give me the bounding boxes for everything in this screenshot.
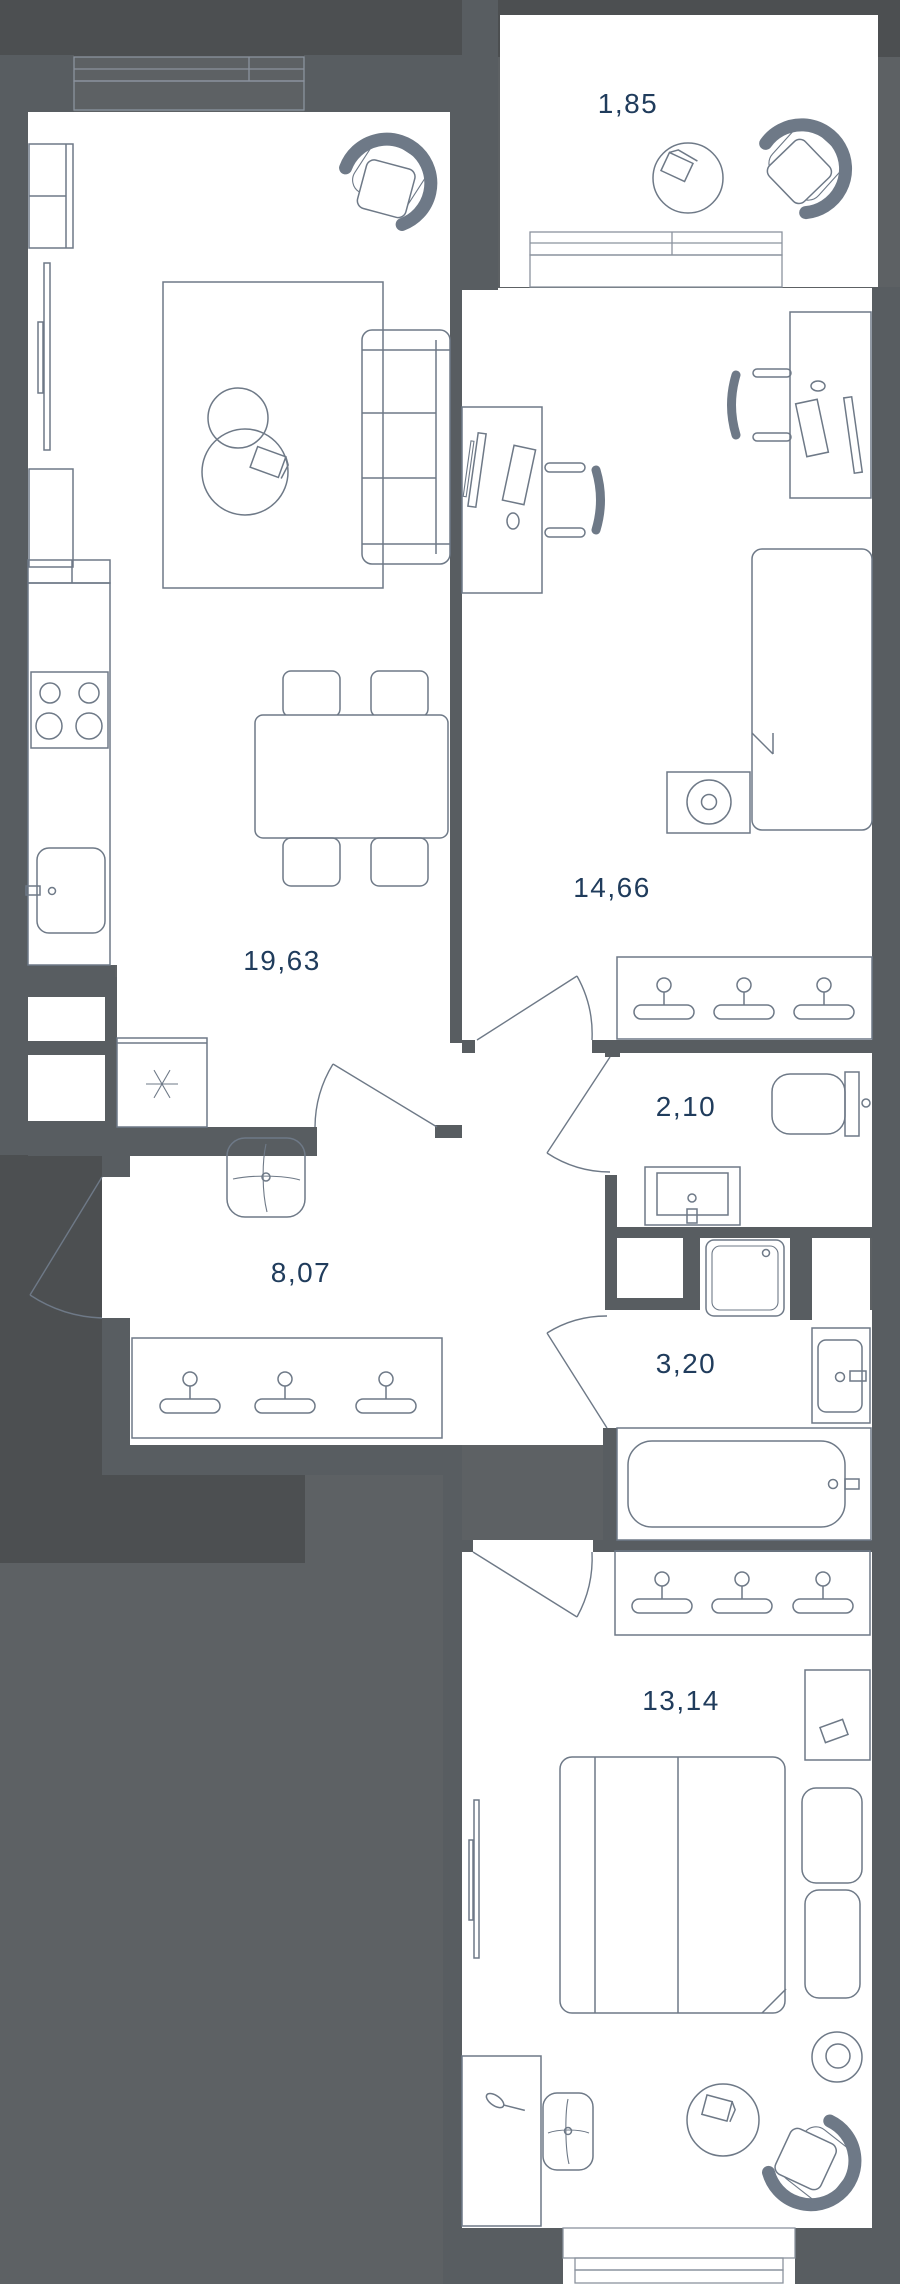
floorplan-canvas: 1,85 14,66 19,63 2,10 8,07 3,20 13,14 bbox=[0, 0, 900, 2284]
label-bedroom-1: 14,66 bbox=[573, 872, 651, 903]
room-loggia bbox=[500, 15, 878, 287]
room-toilet bbox=[612, 1053, 872, 1227]
sink-niche bbox=[812, 1238, 870, 1310]
window-bay bbox=[563, 2228, 795, 2284]
label-bathroom: 3,20 bbox=[656, 1348, 717, 1379]
entry-opening bbox=[102, 1177, 130, 1318]
bed-2 bbox=[560, 1757, 786, 2013]
closet-left-2 bbox=[28, 1055, 105, 1121]
label-bedroom-2: 13,14 bbox=[642, 1685, 720, 1716]
room-bathroom bbox=[605, 1310, 872, 1540]
living-room-window bbox=[74, 57, 304, 110]
duct-shaft bbox=[617, 1238, 683, 1298]
label-loggia: 1,85 bbox=[598, 88, 659, 119]
bed-1 bbox=[752, 549, 872, 830]
label-kitchen-living: 19,63 bbox=[243, 945, 321, 976]
label-hallway: 8,07 bbox=[271, 1257, 332, 1288]
label-toilet: 2,10 bbox=[656, 1091, 717, 1122]
